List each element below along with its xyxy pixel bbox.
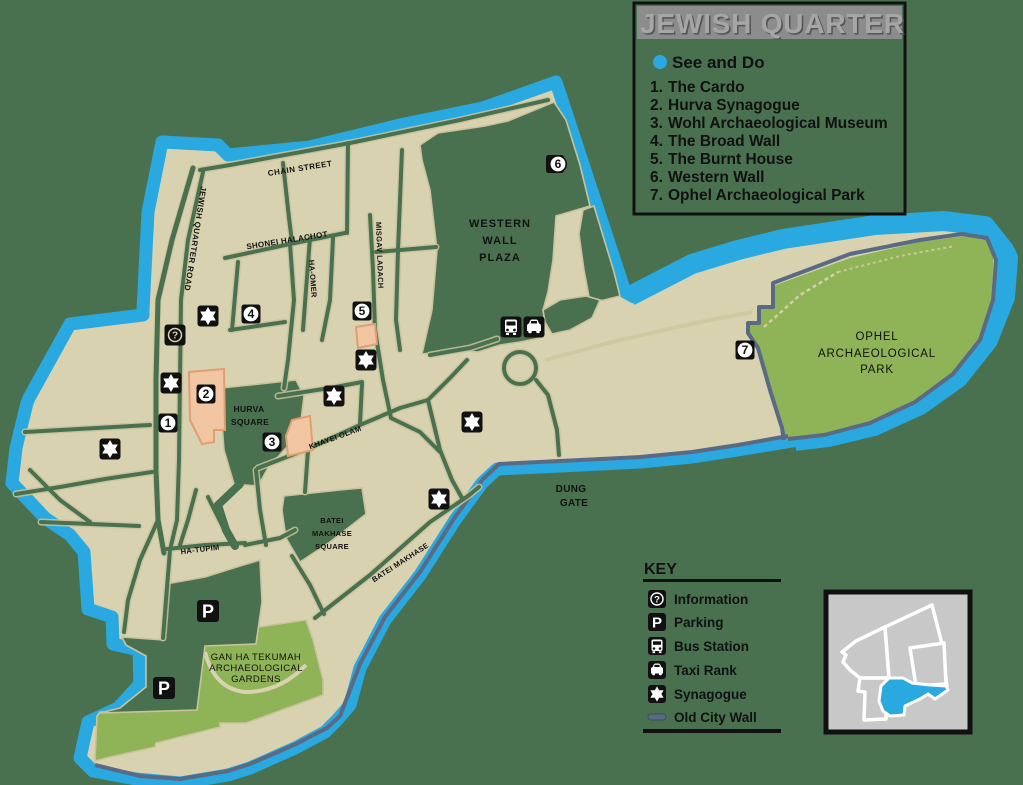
- svg-text:5: 5: [359, 304, 366, 318]
- svg-text:MAKHASE: MAKHASE: [312, 529, 352, 538]
- svg-text:7.: 7.: [650, 187, 663, 204]
- svg-text:6.: 6.: [650, 169, 663, 186]
- svg-text:Bus Station: Bus Station: [674, 639, 749, 654]
- svg-text:Parking: Parking: [674, 615, 724, 630]
- svg-text:BATEI: BATEI: [320, 516, 343, 525]
- svg-text:PARK: PARK: [860, 364, 894, 376]
- svg-text:WESTERN: WESTERN: [469, 218, 531, 230]
- svg-text:4: 4: [248, 307, 255, 321]
- svg-text:JEWISH QUARTER: JEWISH QUARTER: [640, 8, 905, 39]
- svg-text:GARDENS: GARDENS: [231, 674, 281, 685]
- svg-text:5.: 5.: [650, 151, 663, 168]
- svg-text:GATE: GATE: [560, 498, 588, 509]
- svg-text:KEY: KEY: [644, 561, 677, 578]
- svg-text:P: P: [652, 615, 662, 632]
- svg-text:3: 3: [269, 435, 276, 449]
- svg-text:Taxi Rank: Taxi Rank: [674, 663, 737, 678]
- svg-text:The Cardo: The Cardo: [668, 79, 745, 96]
- svg-text:2.: 2.: [650, 97, 663, 114]
- svg-text:HURVA: HURVA: [234, 404, 265, 414]
- svg-text:Synagogue: Synagogue: [674, 687, 747, 702]
- svg-text:See and Do: See and Do: [672, 53, 765, 72]
- svg-text:DUNG: DUNG: [556, 484, 587, 495]
- svg-text:Western Wall: Western Wall: [668, 169, 764, 186]
- svg-text:1: 1: [165, 416, 172, 430]
- svg-text:ARCHAEOLOGICAL: ARCHAEOLOGICAL: [209, 663, 303, 674]
- svg-text:The Broad Wall: The Broad Wall: [668, 133, 780, 150]
- svg-text:GAN HA TEKUMAH: GAN HA TEKUMAH: [211, 652, 301, 663]
- svg-text:P: P: [158, 679, 170, 699]
- svg-text:Old City Wall: Old City Wall: [674, 710, 757, 725]
- svg-text:Ophel Archaeological Park: Ophel Archaeological Park: [668, 187, 865, 204]
- svg-text:PLAZA: PLAZA: [479, 252, 521, 264]
- svg-text:Wohl Archaeological Museum: Wohl Archaeological Museum: [668, 115, 888, 132]
- svg-text:?: ?: [654, 595, 660, 606]
- svg-text:The Burnt House: The Burnt House: [668, 151, 793, 168]
- svg-text:OPHEL: OPHEL: [856, 331, 899, 343]
- svg-text:4.: 4.: [650, 133, 663, 150]
- svg-text:3.: 3.: [650, 115, 663, 132]
- svg-text:2: 2: [203, 387, 210, 401]
- svg-text:1.: 1.: [650, 79, 663, 96]
- svg-text:?: ?: [172, 331, 178, 342]
- svg-text:Hurva Synagogue: Hurva Synagogue: [668, 97, 800, 114]
- svg-text:P: P: [202, 602, 214, 622]
- svg-text:SQUARE: SQUARE: [315, 542, 349, 551]
- svg-text:WALL: WALL: [482, 235, 517, 247]
- svg-text:SQUARE: SQUARE: [231, 417, 269, 427]
- svg-text:ARCHAEOLOGICAL: ARCHAEOLOGICAL: [818, 348, 936, 360]
- svg-text:Information: Information: [674, 592, 748, 607]
- svg-text:7: 7: [742, 343, 749, 357]
- svg-text:6: 6: [555, 157, 562, 171]
